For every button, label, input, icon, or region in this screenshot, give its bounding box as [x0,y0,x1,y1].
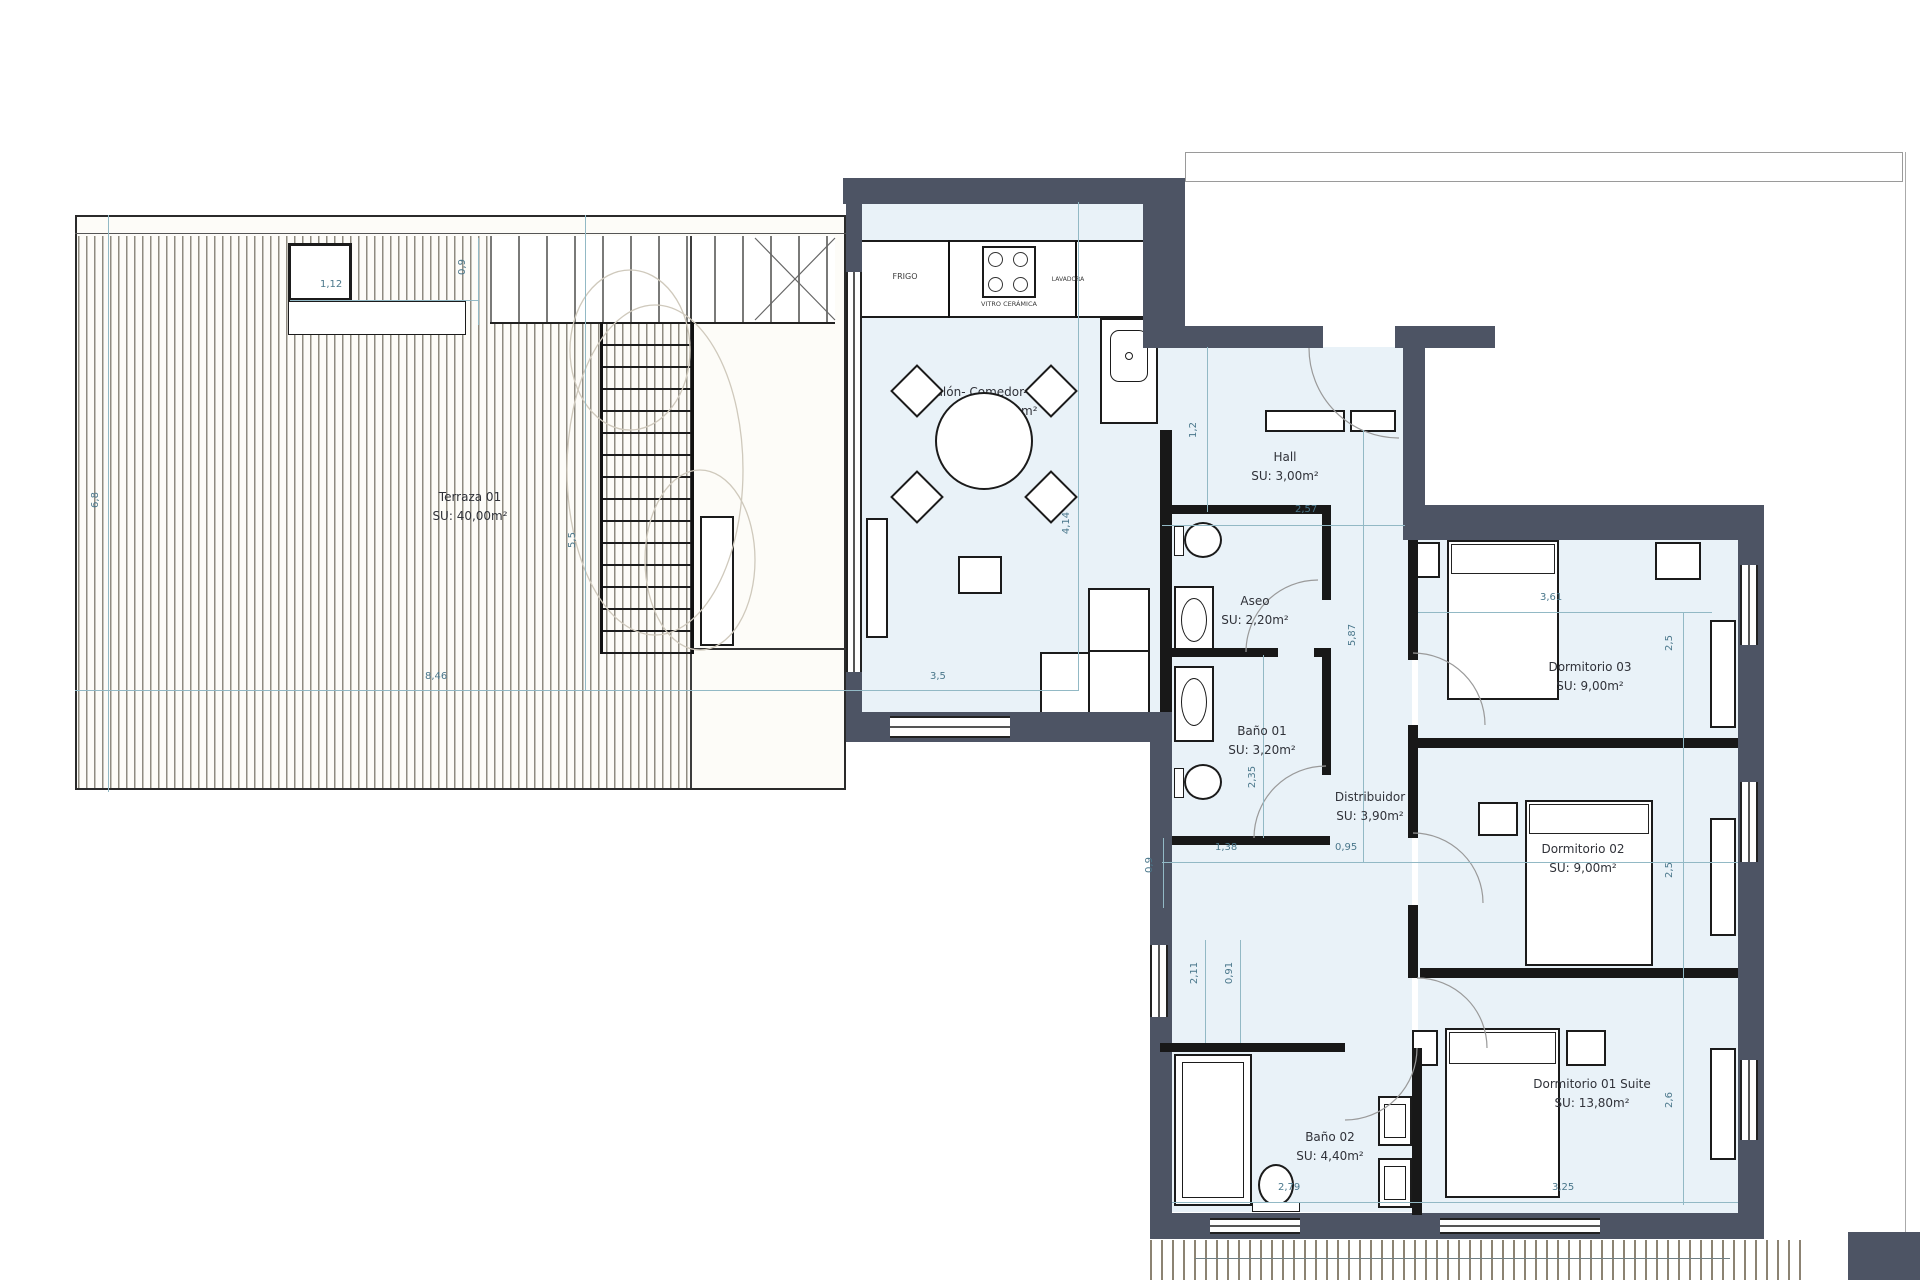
dim-line-09-top [478,238,479,325]
room-label-dorm02: Dormitorio 02 SU: 9,00m² [1503,840,1663,878]
room-label-suite: Dormitorio 01 Suite SU: 13,80m² [1502,1075,1682,1113]
room-name: Distribuidor [1290,788,1450,807]
dim-line-terrace-h [75,690,1078,691]
room-label-distribuidor: Distribuidor SU: 3,90m² [1290,788,1450,826]
dim-095: 0,95 [1335,843,1357,853]
floor-plan: FRIGO VITRO CERÁMICA LAVADORA [0,0,1920,1280]
room-label-terraza: Terraza 01 SU: 40,00m² [390,488,550,526]
lower-terrace-dim-line [1195,1258,1730,1259]
room-name: Aseo [1175,592,1335,611]
dim-138: 1,38 [1215,843,1237,853]
room-name: Dormitorio 03 [1510,658,1670,677]
dim-091: 0,91 [1225,962,1235,984]
tree-outline [567,270,755,650]
room-area: SU: 40,00m² [390,507,550,526]
dim-line-112 [290,300,478,301]
room-label-dorm03: Dormitorio 03 SU: 9,00m² [1510,658,1670,696]
room-area: SU: 4,40m² [1250,1147,1410,1166]
room-label-bath1: Baño 01 SU: 3,20m² [1182,722,1342,760]
dim-68: 6,8 [91,492,101,508]
room-area: SU: 3,90m² [1290,807,1450,826]
dim-112: 1,12 [320,280,342,290]
dim-line-bedrooms-v [1683,612,1684,1205]
dim-361: 3,61 [1540,593,1562,603]
dim-414: 4,14 [1062,512,1072,534]
room-area: SU: 3,20m² [1182,741,1342,760]
room-area: SU: 9,00m² [1510,677,1670,696]
dim-09-top: 0,9 [458,259,468,275]
room-name: Dormitorio 01 Suite [1502,1075,1682,1094]
dim-25-a: 2,5 [1665,635,1675,651]
dim-line-55 [585,215,586,690]
dim-279: 2,79 [1278,1183,1300,1193]
dim-line-257 [1162,525,1405,526]
dim-325: 3,25 [1552,1183,1574,1193]
room-area: SU: 9,00m² [1503,859,1663,878]
room-area: SU: 2,20m² [1175,611,1335,630]
dim-line-414 [1078,202,1079,691]
room-name: Terraza 01 [390,488,550,507]
dim-257: 2,57 [1295,505,1317,515]
room-area: SU: 13,80m² [1502,1094,1682,1113]
dim-235: 2,35 [1248,766,1258,788]
room-label-aseo: Aseo SU: 2,20m² [1175,592,1335,630]
dim-line-12 [1207,347,1208,512]
dim-09-mid: 0,9 [1145,857,1155,873]
room-area: SU: 3,00m² [1205,467,1365,486]
dim-line-bottom-h [1172,1202,1738,1203]
dim-846: 8,46 [425,672,447,682]
dim-12: 1,2 [1189,422,1199,438]
dim-587: 5,87 [1348,624,1358,646]
dim-line-09-mid [1163,838,1164,908]
dim-211: 2,11 [1190,962,1200,984]
dim-line-091 [1240,940,1241,1043]
dim-line-68 [108,215,109,792]
room-name: Hall [1205,448,1365,467]
dim-25-b: 2,5 [1665,862,1675,878]
room-name: Dormitorio 02 [1503,840,1663,859]
room-name: Baño 02 [1250,1128,1410,1147]
room-label-hall: Hall SU: 3,00m² [1205,448,1365,486]
dim-line-211 [1205,940,1206,1043]
dim-55: 5,5 [568,532,578,548]
stair-direction-cross [755,238,835,320]
dim-line-361 [1418,612,1712,613]
dim-35: 3,5 [930,672,946,682]
room-label-bath2: Baño 02 SU: 4,40m² [1250,1128,1410,1166]
room-name: Baño 01 [1182,722,1342,741]
